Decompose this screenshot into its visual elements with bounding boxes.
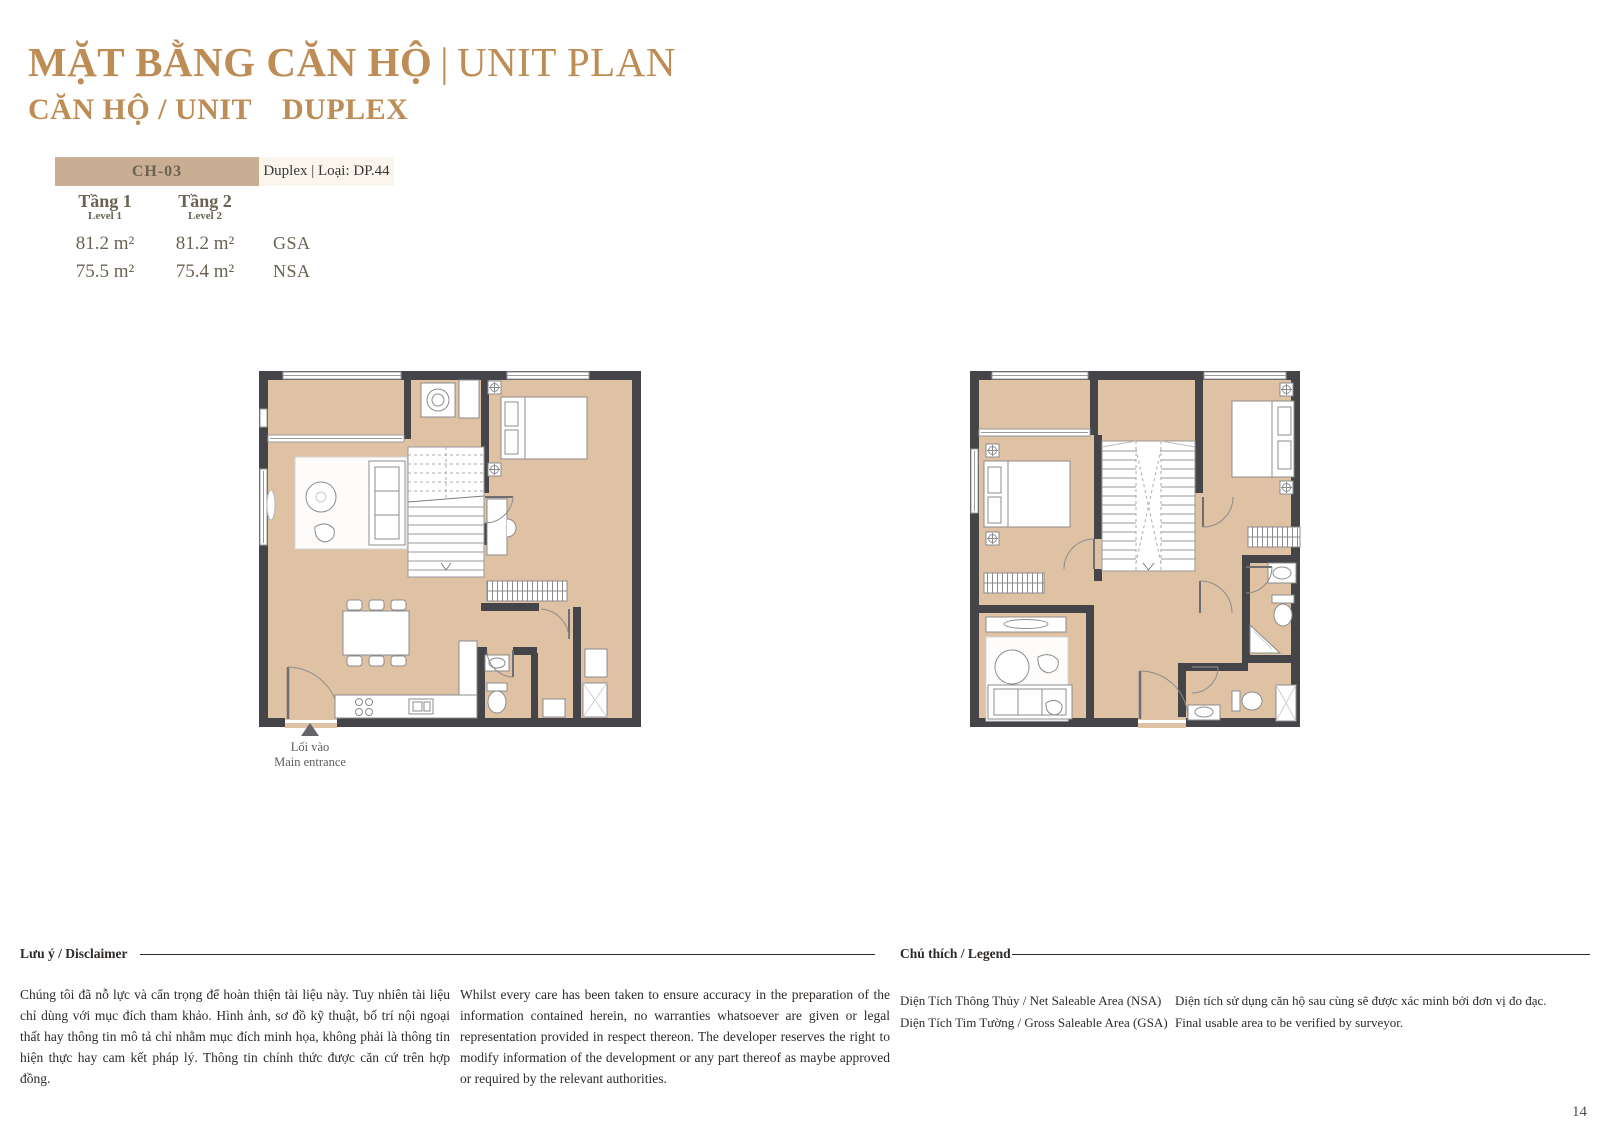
- bed-icon: [984, 461, 1070, 527]
- nsa-level-2: 75.4 m²: [155, 261, 255, 283]
- entrance-label-vi: Lối vào: [240, 740, 380, 755]
- dresser-icon: [986, 617, 1066, 632]
- toilet-icon: [1272, 595, 1294, 626]
- legend-heading: Chú thích / Legend: [900, 946, 1011, 962]
- bed-icon: [501, 397, 587, 459]
- disclaimer-text-vi: Chúng tôi đã nỗ lực và cẩn trọng để hoàn…: [20, 984, 450, 1089]
- nsa-label: NSA: [273, 261, 311, 282]
- dining-table-icon: [343, 600, 409, 666]
- legend-item: Diện tích sử dụng căn hộ sau cùng sẽ đượ…: [1175, 990, 1595, 1012]
- closet-icon: [585, 649, 607, 677]
- page-subtitle: CĂN HỘ / UNITDUPLEX: [28, 93, 408, 127]
- page-number: 14: [1572, 1104, 1587, 1121]
- ac-vent-icon: [488, 463, 501, 476]
- legend-item: Diện Tích Thông Thủy / Net Saleable Area…: [900, 990, 1175, 1012]
- wardrobe-icon: [984, 573, 1044, 593]
- brochure-page: MẶT BẰNG CĂN HỘ|UNIT PLAN CĂN HỘ / UNITD…: [0, 0, 1600, 1131]
- gsa-level-1: 81.2 m²: [55, 233, 155, 255]
- plant-icon: [267, 490, 275, 520]
- toilet-icon: [1232, 691, 1262, 711]
- desk-icon: [487, 499, 507, 555]
- legend-rule: [1012, 954, 1590, 955]
- laundry-cabinet: [459, 380, 479, 418]
- shower-icon: [1276, 685, 1296, 721]
- toilet-icon: [487, 683, 507, 713]
- coffee-table-icon: [306, 482, 336, 512]
- stairs: [408, 447, 484, 577]
- legend-item: Diện Tích Tim Tường / Gross Saleable Are…: [900, 1012, 1175, 1034]
- disclaimer-text-en: Whilst every care has been taken to ensu…: [460, 984, 890, 1089]
- ac-vent-icon: [1280, 481, 1293, 494]
- round-table-icon: [995, 650, 1029, 684]
- wardrobe-icon: [487, 581, 567, 601]
- unit-info-table: CH-03 Duplex | Loại: DP.44 Tầng 1 Level …: [55, 157, 415, 186]
- unit-type: Duplex | Loại: DP.44: [259, 157, 394, 186]
- subtitle-label: CĂN HỘ / UNIT: [28, 93, 252, 126]
- floor-plan-level-2-drawing: [950, 357, 1318, 735]
- page-title: MẶT BẰNG CĂN HỘ|UNIT PLAN: [28, 41, 676, 84]
- page-title-en: UNIT PLAN: [457, 39, 676, 85]
- ac-vent-icon: [488, 381, 501, 394]
- ac-vent-icon: [1280, 383, 1293, 396]
- entrance-arrow-icon: [301, 723, 319, 736]
- sofa-icon: [369, 461, 405, 545]
- level-2-label: Tầng 2 Level 2: [155, 191, 255, 222]
- entrance-label: Lối vào Main entrance: [240, 723, 380, 770]
- gsa-label: GSA: [273, 233, 311, 254]
- disclaimer-rule: [140, 954, 875, 955]
- bathroom-sink-icon: [485, 655, 509, 671]
- washbasin-icon: [543, 699, 565, 717]
- legend-item: Final usable area to be verified by surv…: [1175, 1012, 1595, 1034]
- wardrobe-icon: [1248, 527, 1300, 547]
- bed-icon: [1232, 401, 1294, 477]
- ac-vent-icon: [986, 444, 999, 457]
- subtitle-value: DUPLEX: [282, 93, 408, 126]
- legend-items-left: Diện Tích Thông Thủy / Net Saleable Area…: [900, 990, 1175, 1034]
- entrance-label-en: Main entrance: [240, 755, 380, 770]
- ac-vent-icon: [986, 532, 999, 545]
- floor-plan-level-1: [255, 357, 645, 737]
- unit-info-header: CH-03 Duplex | Loại: DP.44: [55, 157, 415, 186]
- nsa-level-1: 75.5 m²: [55, 261, 155, 283]
- unit-code: CH-03: [55, 157, 259, 186]
- disclaimer-heading: Lưu ý / Disclaimer: [20, 946, 127, 962]
- washbasin-icon: [1188, 705, 1220, 720]
- title-divider: |: [440, 39, 449, 85]
- washing-machine-icon: [421, 383, 455, 417]
- bathroom-vanity-icon: [1268, 563, 1296, 583]
- legend-items-right: Diện tích sử dụng căn hộ sau cùng sẽ đượ…: [1175, 990, 1595, 1034]
- floor-plan-level-2: [950, 357, 1318, 737]
- page-title-vi: MẶT BẰNG CĂN HỘ: [28, 39, 432, 85]
- sofa-icon: [988, 685, 1072, 719]
- stairs: [1102, 441, 1195, 571]
- gsa-level-2: 81.2 m²: [155, 233, 255, 255]
- floor-plan-level-1-drawing: [255, 357, 645, 737]
- shower-icon: [583, 683, 607, 717]
- level-1-label: Tầng 1 Level 1: [55, 191, 155, 222]
